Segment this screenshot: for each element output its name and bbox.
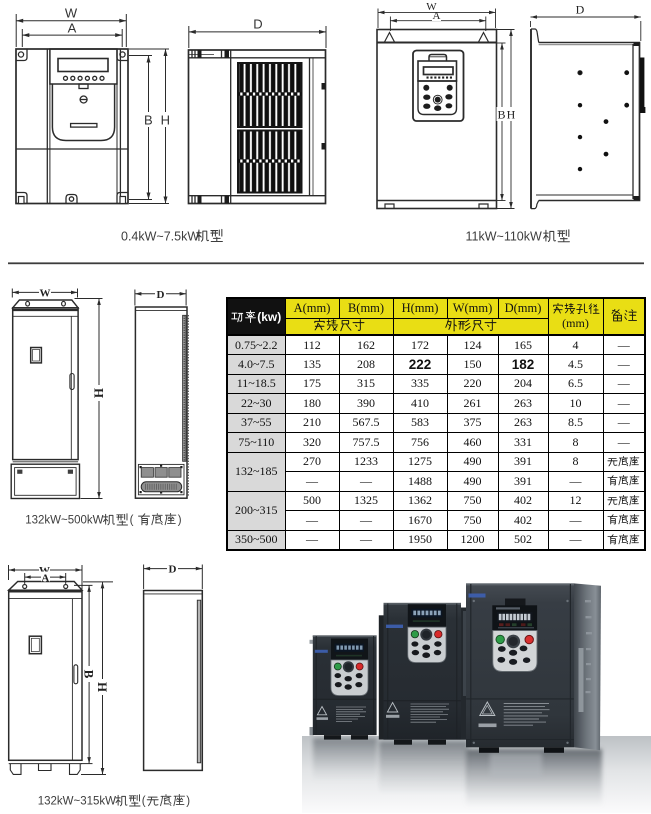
svg-text:132kW~315kW: 132kW~315kW bbox=[38, 795, 116, 807]
svg-text:W: W bbox=[65, 6, 78, 21]
svg-text:D: D bbox=[253, 17, 262, 32]
svg-text:B: B bbox=[144, 113, 153, 128]
svg-text:W: W bbox=[40, 288, 51, 300]
svg-text:D: D bbox=[157, 289, 165, 301]
svg-text:H: H bbox=[161, 113, 170, 128]
svg-text:0.4kW~7.5kW: 0.4kW~7.5kW bbox=[121, 229, 199, 243]
svg-text:A: A bbox=[433, 10, 441, 22]
svg-text:(: ( bbox=[142, 795, 146, 807]
svg-text:H: H bbox=[507, 108, 516, 122]
svg-text:B: B bbox=[82, 670, 97, 679]
svg-text:D: D bbox=[169, 564, 177, 576]
svg-text:B: B bbox=[497, 108, 505, 122]
svg-text:A: A bbox=[68, 21, 77, 36]
svg-text:): ) bbox=[178, 515, 182, 527]
svg-text:(: ( bbox=[130, 515, 134, 527]
svg-text:132kW~500kW: 132kW~500kW bbox=[25, 515, 103, 527]
svg-text:D: D bbox=[576, 3, 585, 17]
svg-text:H: H bbox=[92, 388, 107, 398]
svg-text:A: A bbox=[41, 572, 49, 584]
svg-text:H: H bbox=[95, 682, 110, 692]
svg-text:): ) bbox=[186, 795, 190, 807]
svg-text:11kW~110kW: 11kW~110kW bbox=[466, 230, 543, 244]
